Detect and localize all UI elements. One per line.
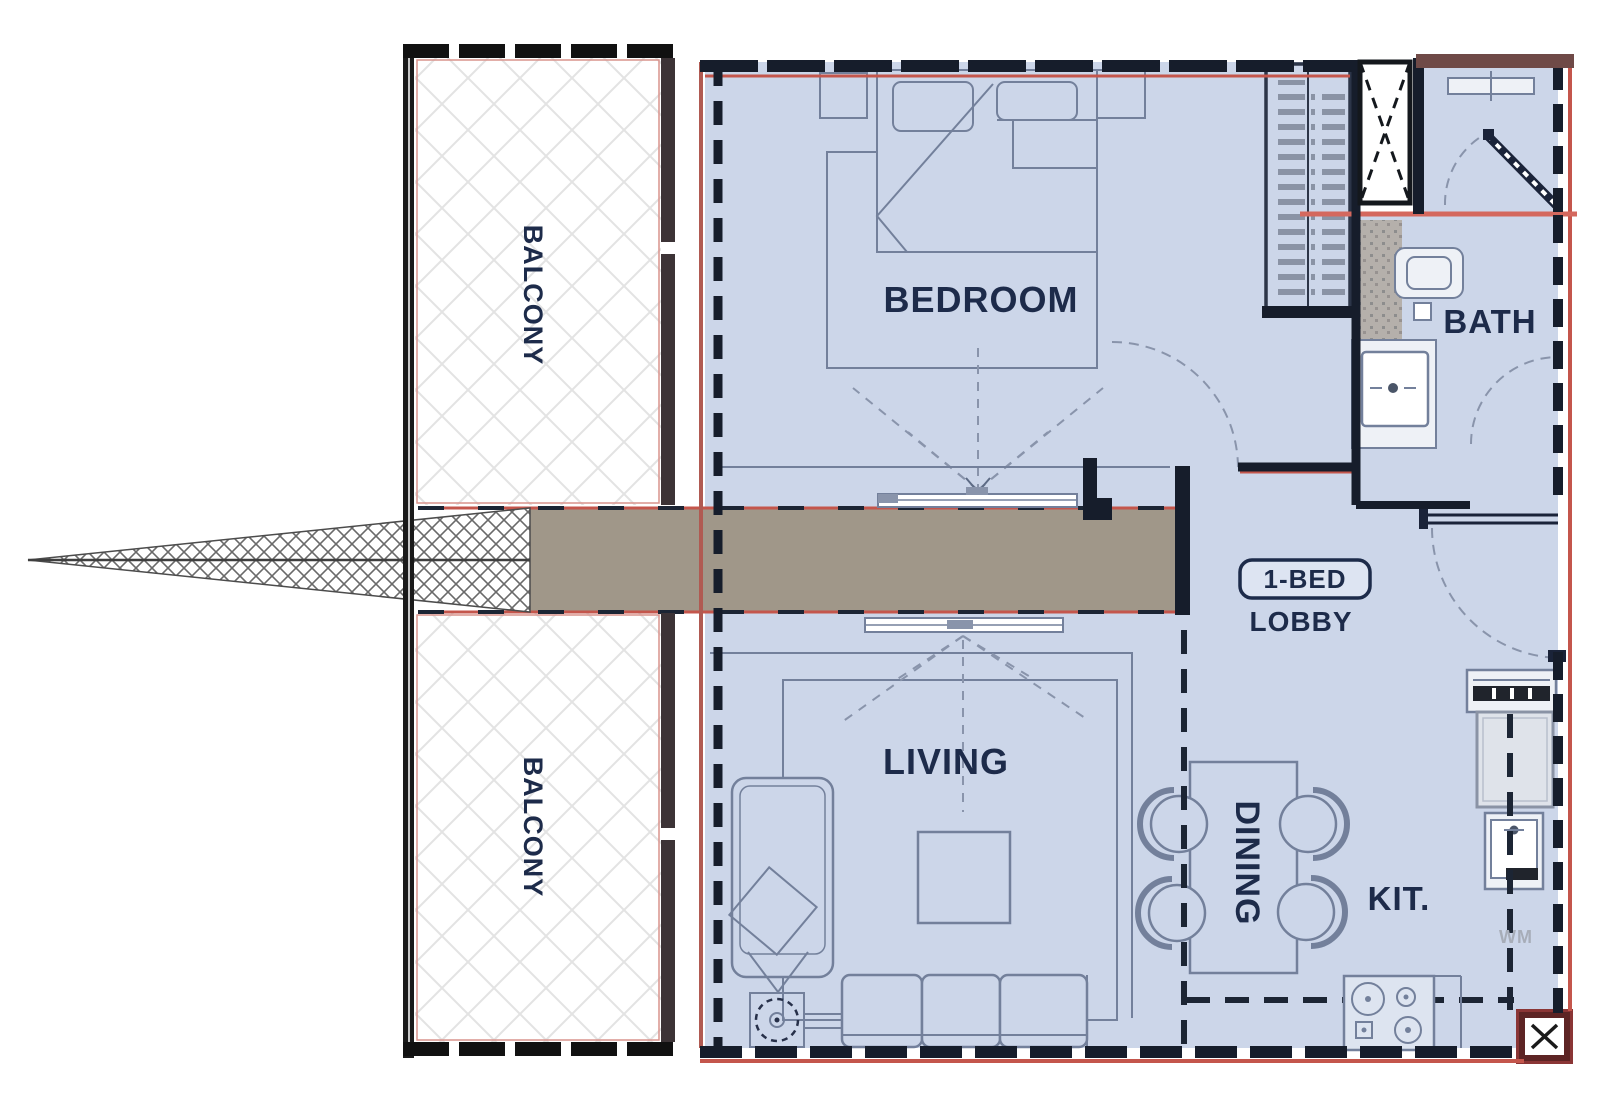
sofa [842, 975, 1087, 1047]
living-window-sill [865, 618, 1063, 632]
lobby-label: LOBBY [1250, 606, 1353, 637]
balcony-top-label: BALCONY [518, 225, 548, 366]
dining-label: DINING [1228, 801, 1266, 926]
bedroom-label: BEDROOM [884, 279, 1079, 320]
armchair [729, 778, 833, 992]
bath-label: BATH [1443, 303, 1536, 340]
floor-plan-canvas: BALCONY BALCONY BEDROOM BATH 1-BED LOBBY… [0, 0, 1620, 1100]
living-label: LIVING [883, 741, 1009, 782]
entry-top-wall [1416, 54, 1574, 68]
washing-machine-label: WM [1499, 927, 1533, 947]
kitchen-sink [1485, 813, 1543, 889]
floor-plan: BALCONY BALCONY BEDROOM BATH 1-BED LOBBY… [0, 0, 1620, 1100]
bed [877, 70, 1097, 252]
fridge [1477, 712, 1553, 807]
kitchen-counter-grille [1467, 670, 1556, 712]
wardrobe [1262, 64, 1354, 318]
kitchen-label: KIT. [1368, 880, 1431, 917]
duct-box [1518, 1011, 1571, 1062]
shaft [1360, 62, 1410, 203]
bath-faucet [1388, 383, 1398, 393]
toilet [1395, 248, 1463, 298]
stove [1344, 976, 1434, 1050]
toilet-flush [1414, 303, 1431, 320]
unit-type-label: 1-BED [1263, 564, 1346, 594]
balcony-bottom-label: BALCONY [518, 757, 548, 898]
